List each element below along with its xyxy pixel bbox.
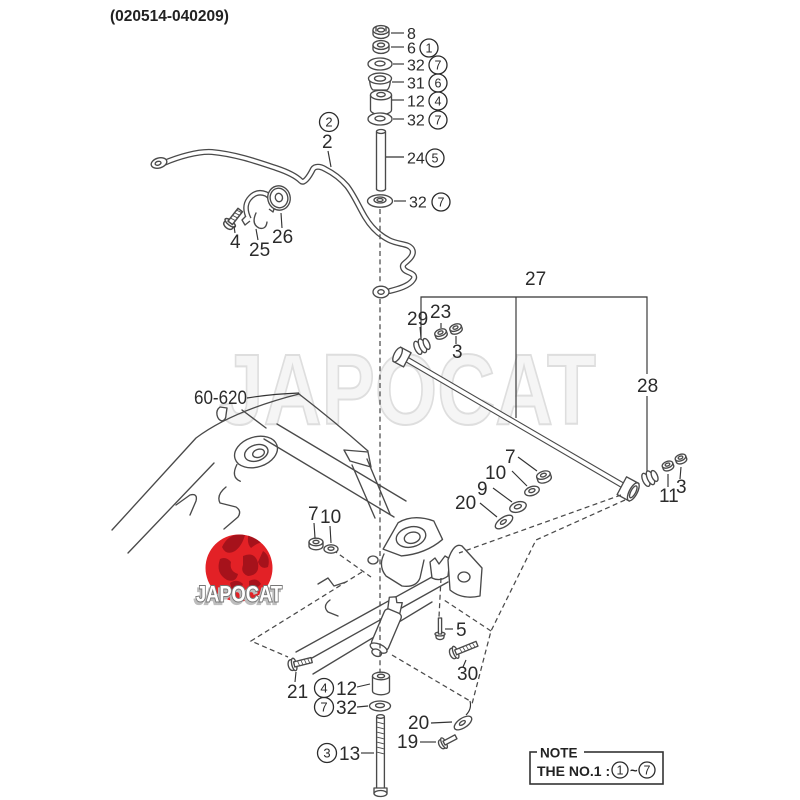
svg-text:13: 13: [339, 744, 360, 765]
svg-text:32: 32: [336, 698, 357, 719]
svg-text:7: 7: [435, 58, 442, 72]
svg-text:10: 10: [485, 463, 506, 484]
svg-text:3: 3: [452, 342, 463, 363]
svg-text:28: 28: [637, 376, 658, 397]
svg-text:26: 26: [272, 227, 293, 248]
svg-text:19: 19: [397, 732, 418, 753]
svg-text:1: 1: [426, 41, 433, 55]
svg-text:3: 3: [323, 746, 330, 761]
svg-text:2: 2: [325, 115, 332, 130]
svg-text:NOTE: NOTE: [540, 746, 578, 761]
svg-text:31: 31: [407, 76, 425, 93]
svg-text:4: 4: [230, 232, 241, 253]
svg-text:20: 20: [455, 493, 476, 514]
svg-text:12: 12: [407, 94, 425, 111]
svg-text:7: 7: [320, 700, 327, 715]
svg-text:5: 5: [432, 151, 439, 165]
svg-text:32: 32: [407, 113, 425, 130]
svg-text:27: 27: [525, 269, 546, 290]
svg-text:32: 32: [409, 195, 427, 212]
svg-text:60-620: 60-620: [194, 388, 247, 409]
svg-text:12: 12: [336, 679, 357, 700]
svg-text:20: 20: [408, 713, 429, 734]
svg-text:1: 1: [617, 763, 624, 777]
svg-text:(020514-040209): (020514-040209): [110, 8, 229, 25]
svg-text:~: ~: [630, 763, 638, 778]
svg-text:29: 29: [407, 309, 428, 330]
svg-text:32: 32: [407, 58, 425, 75]
svg-text:JAPOCAT: JAPOCAT: [196, 582, 282, 607]
svg-text:5: 5: [456, 620, 467, 641]
svg-text:4: 4: [320, 681, 327, 696]
svg-text:30: 30: [457, 664, 478, 685]
svg-text:21: 21: [287, 682, 308, 703]
svg-text:9: 9: [477, 479, 488, 500]
svg-text:10: 10: [320, 507, 341, 528]
svg-text:6: 6: [435, 76, 442, 90]
svg-text:6: 6: [407, 41, 416, 58]
svg-text:THE NO.1 :: THE NO.1 :: [537, 763, 610, 779]
svg-text:2: 2: [322, 132, 333, 153]
svg-text:7: 7: [438, 195, 445, 209]
svg-text:7: 7: [644, 763, 651, 777]
svg-text:7: 7: [505, 447, 516, 468]
svg-text:24: 24: [407, 151, 425, 168]
svg-text:3: 3: [676, 477, 687, 498]
svg-text:4: 4: [435, 94, 442, 108]
svg-text:7: 7: [308, 504, 319, 525]
svg-text:7: 7: [435, 113, 442, 127]
svg-text:25: 25: [249, 240, 270, 261]
svg-text:23: 23: [430, 302, 451, 323]
